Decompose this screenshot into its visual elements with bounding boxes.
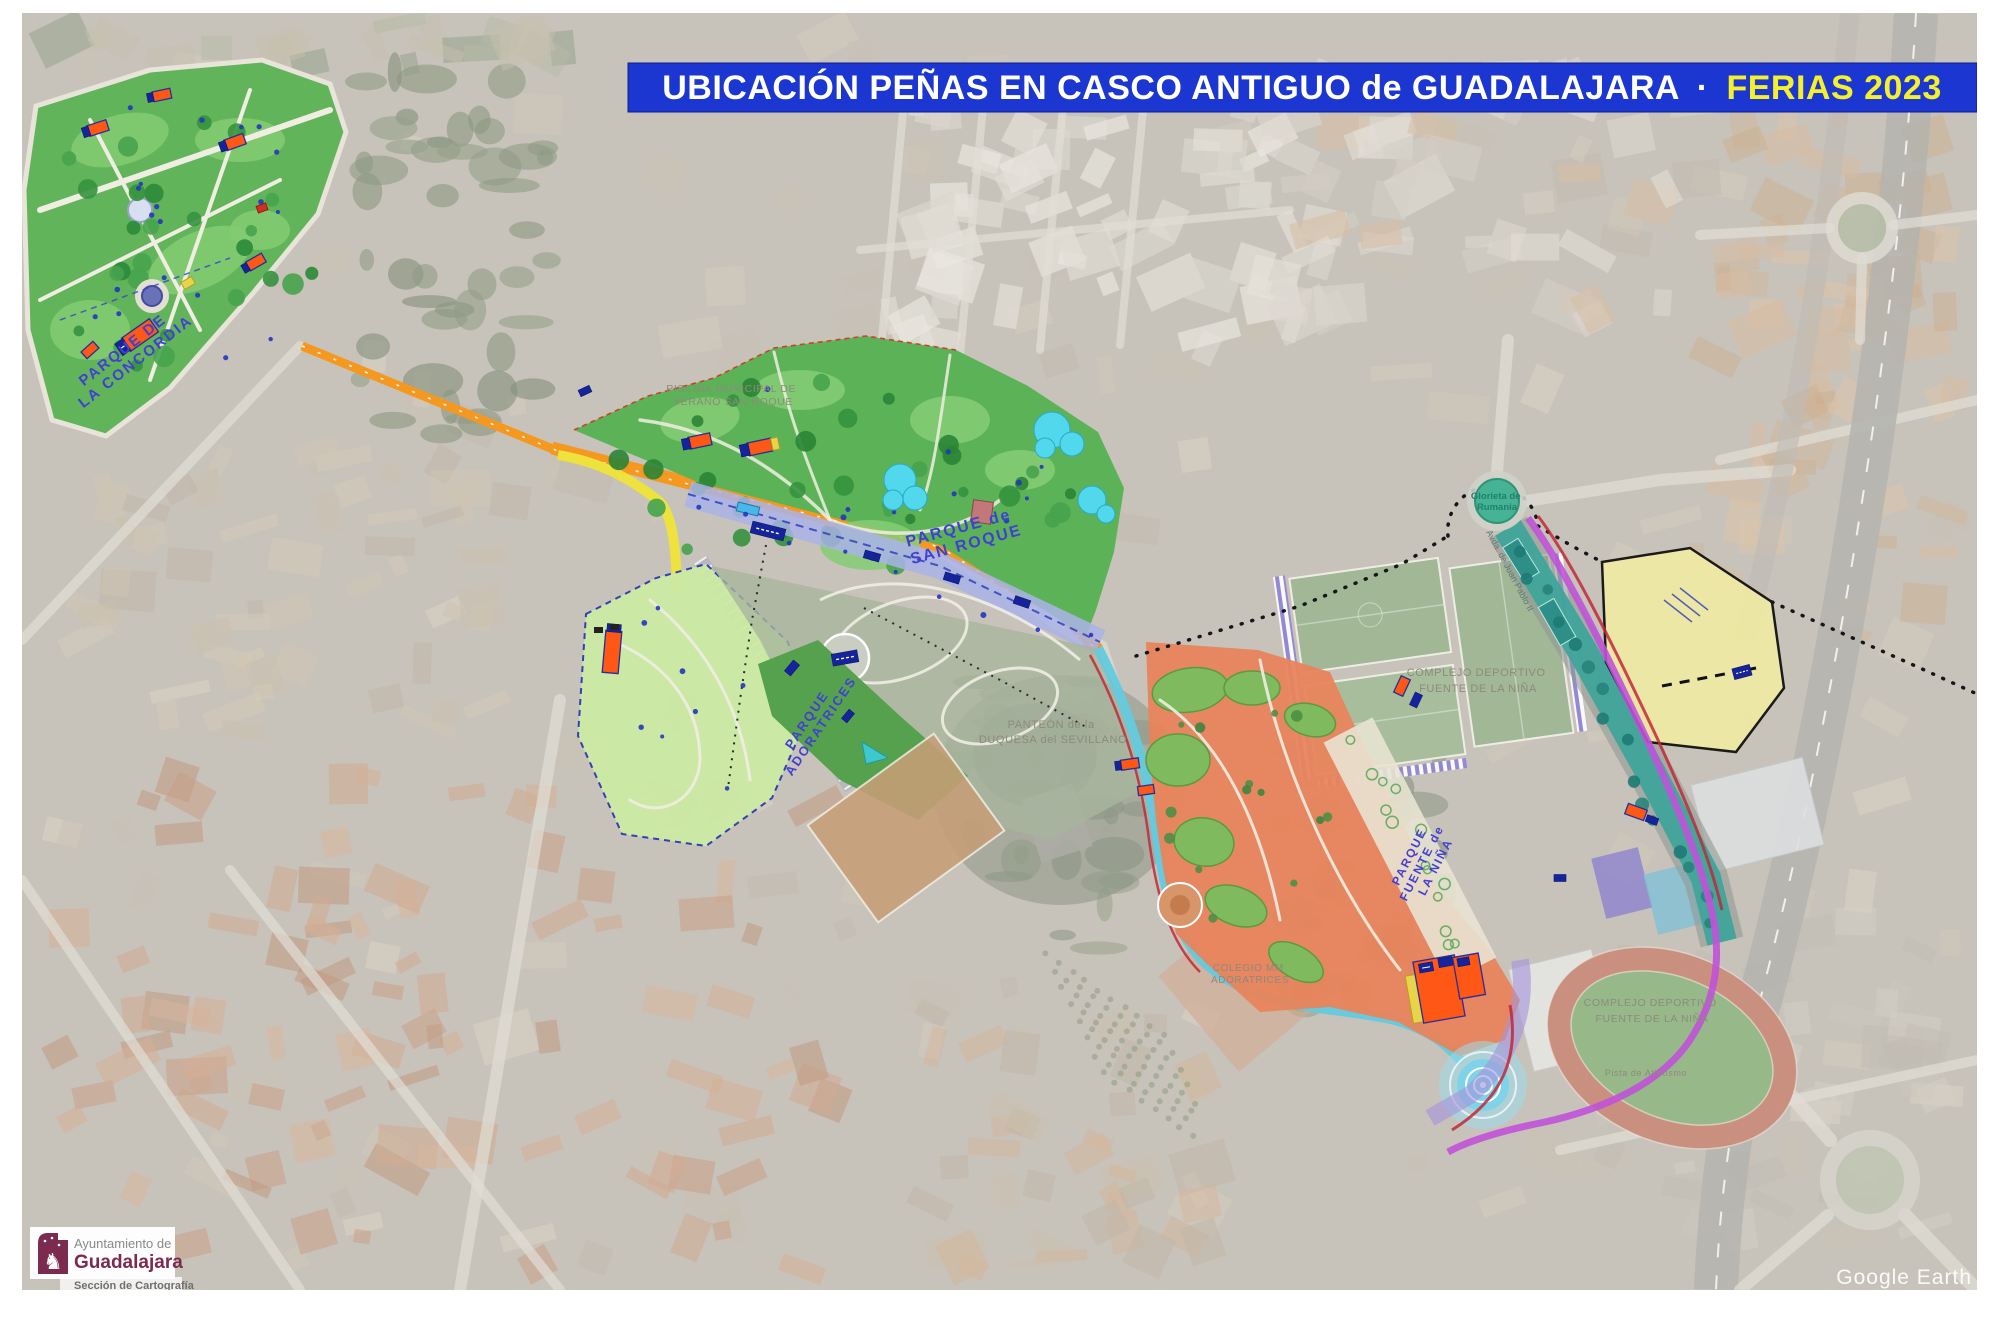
logo-line3: Sección de Cartografía <box>74 1280 195 1292</box>
map-canvas: PARQUE DE LA CONCORDIA PARQUE de SAN ROQ… <box>0 0 2000 1333</box>
label-colegio: COLEGIO MM ADORATRICES <box>1211 963 1289 986</box>
logo-line1: Ayuntamiento de <box>74 1236 171 1251</box>
title-banner: UBICACIÓN PEÑAS EN CASCO ANTIGUO de GUAD… <box>628 63 1977 112</box>
map-poster: { "title": { "main": "UBICACIÓN PEÑAS EN… <box>0 0 2000 1333</box>
label-glorieta-rumania: Glorieta de Rumania <box>1471 491 1523 513</box>
label-pista-atletismo: Pista de Atletismo <box>1605 1068 1687 1078</box>
page-title: UBICACIÓN PEÑAS EN CASCO ANTIGUO de GUAD… <box>662 69 1941 107</box>
logo-line2: Guadalajara <box>74 1252 183 1273</box>
watermark-google-earth: Google Earth <box>1836 1266 1972 1289</box>
label-piscina: PISCINA MUNICIPAL DE VERANO SAN ROQUE <box>666 383 799 408</box>
svg-text:♞: ♞ <box>43 1249 63 1274</box>
